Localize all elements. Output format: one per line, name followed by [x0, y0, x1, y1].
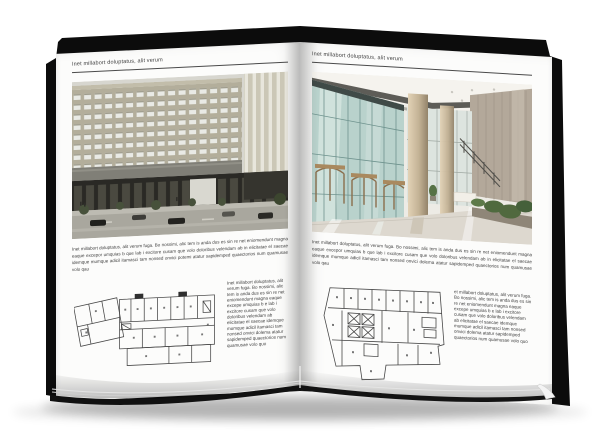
- left-side-column: Inet millabort doluptatus, alit verum fu…: [227, 278, 288, 351]
- page-header: Inet millabort doluptatus, alit verum: [72, 51, 288, 68]
- left-plan-row: Inet millabort doluptatus, alit verum fu…: [72, 276, 288, 381]
- column-large: [408, 93, 428, 232]
- right-body-block: Inet millabort doluptatus, alit verum fu…: [312, 239, 532, 279]
- floor-plan-drawing: [318, 279, 446, 393]
- page-header: Inet millabort doluptatus, alit verum: [312, 51, 532, 70]
- side-text: Inet millabort doluptatus, alit verum fu…: [227, 278, 288, 349]
- book-mockup: Inet millabort doluptatus, alit verum: [0, 0, 600, 446]
- body-text: Inet millabort doluptatus, alit verum fu…: [312, 239, 532, 279]
- plan-walls: [74, 293, 214, 368]
- right-side-column: et millabort doluptatus, alit verum fuga…: [454, 289, 532, 364]
- left-page: Inet millabort doluptatus, alit verum: [56, 42, 300, 402]
- right-page: Inet millabort doluptatus, alit verum: [300, 42, 552, 405]
- side-text: et millabort doluptatus, alit verum fuga…: [454, 289, 532, 345]
- building-exterior-photo: [72, 72, 288, 240]
- right-plan-row: et millabort doluptatus, alit verum fuga…: [312, 279, 532, 398]
- plan-walls: [324, 285, 444, 384]
- lobby-interior-photo: [312, 72, 532, 245]
- column-small: [440, 105, 454, 230]
- plan-annotations: [332, 296, 434, 376]
- floor-plan-drawing: [74, 279, 218, 380]
- body-text: Inet millabort doluptatus, alit verum fu…: [72, 236, 288, 274]
- left-body-block: Inet millabort doluptatus, alit verum fu…: [72, 236, 288, 274]
- facade-window-grid: [72, 78, 242, 168]
